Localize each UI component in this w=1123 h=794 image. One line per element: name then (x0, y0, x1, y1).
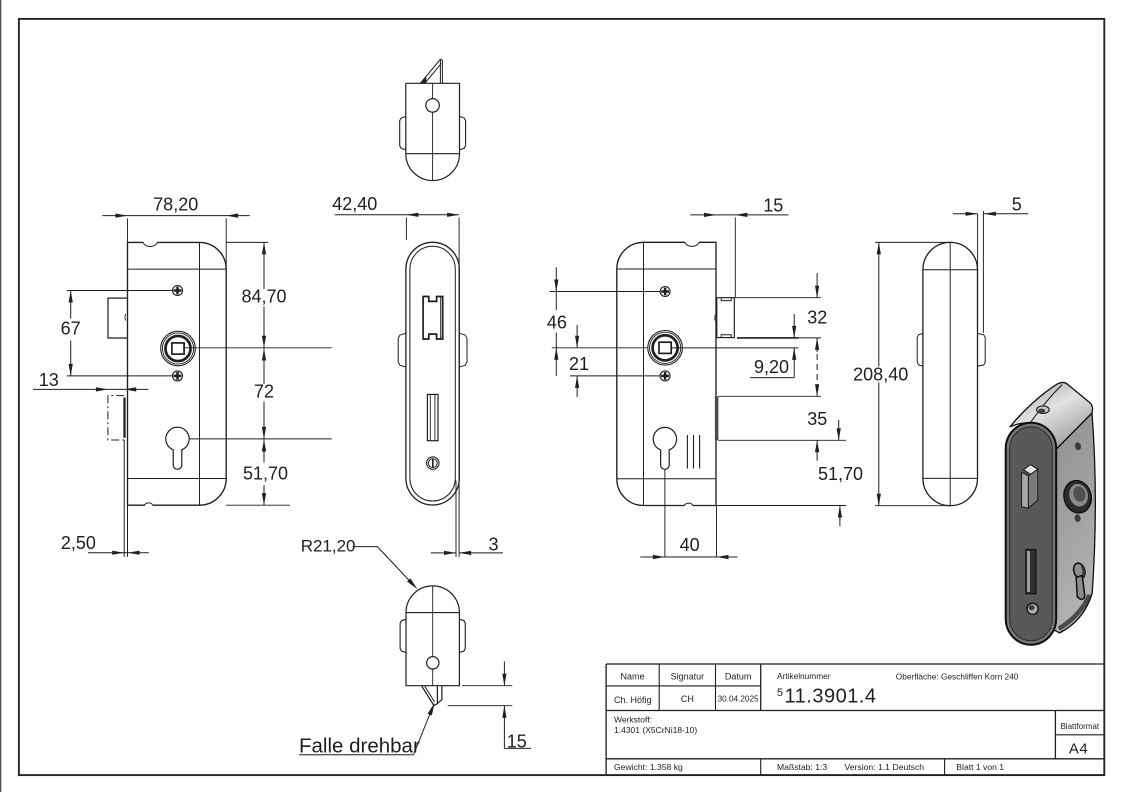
svg-text:84,70: 84,70 (241, 287, 286, 307)
svg-text:11.3901.4: 11.3901.4 (785, 686, 877, 708)
svg-text:Blatt 1 von 1: Blatt 1 von 1 (956, 762, 1004, 772)
svg-text:Deutsch: Deutsch (893, 762, 925, 772)
svg-text:CH: CH (681, 694, 694, 704)
svg-text:Gewicht: 1.358 kg: Gewicht: 1.358 kg (614, 762, 683, 772)
svg-text:67: 67 (61, 319, 81, 339)
svg-text:Ch. Höfig: Ch. Höfig (614, 695, 652, 705)
svg-text:5: 5 (777, 687, 783, 699)
svg-text:3: 3 (488, 535, 498, 555)
svg-text:Falle drehbar: Falle drehbar (299, 735, 420, 758)
svg-text:Signatur: Signatur (671, 672, 705, 682)
svg-text:9,20: 9,20 (754, 357, 789, 377)
svg-text:Version: 1.1: Version: 1.1 (845, 762, 891, 772)
svg-text:78,20: 78,20 (153, 195, 198, 215)
svg-text:Name: Name (620, 672, 644, 682)
svg-text:Werkstoff:: Werkstoff: (614, 715, 652, 725)
svg-text:13: 13 (39, 370, 59, 390)
svg-text:1.4301 (X5CrNi18-10): 1.4301 (X5CrNi18-10) (614, 725, 697, 735)
svg-text:5: 5 (1012, 194, 1022, 214)
svg-text:30.04.2025: 30.04.2025 (718, 695, 759, 704)
svg-text:208,40: 208,40 (853, 365, 908, 385)
svg-text:Blattformat: Blattformat (1060, 722, 1099, 731)
svg-text:35: 35 (807, 409, 827, 429)
svg-text:40: 40 (680, 535, 700, 555)
svg-text:Artikelnummer: Artikelnummer (777, 671, 831, 681)
svg-text:2,50: 2,50 (61, 533, 96, 553)
svg-text:32: 32 (807, 307, 827, 327)
svg-text:A4: A4 (1069, 741, 1088, 758)
svg-text:R21,20: R21,20 (301, 537, 356, 556)
svg-text:15: 15 (763, 196, 783, 216)
svg-text:46: 46 (547, 313, 567, 333)
svg-text:72: 72 (254, 382, 274, 402)
svg-text:21: 21 (569, 354, 589, 374)
svg-text:42,40: 42,40 (332, 194, 377, 214)
svg-text:Maßstab: 1:3: Maßstab: 1:3 (777, 762, 827, 772)
svg-text:51,70: 51,70 (818, 464, 863, 484)
svg-text:Datum: Datum (725, 672, 752, 682)
svg-text:15: 15 (507, 732, 527, 752)
svg-text:51,70: 51,70 (243, 464, 288, 484)
svg-text:Oberfläche: Geschliffen Korn: Oberfläche: Geschliffen Korn 240 (896, 672, 1019, 682)
